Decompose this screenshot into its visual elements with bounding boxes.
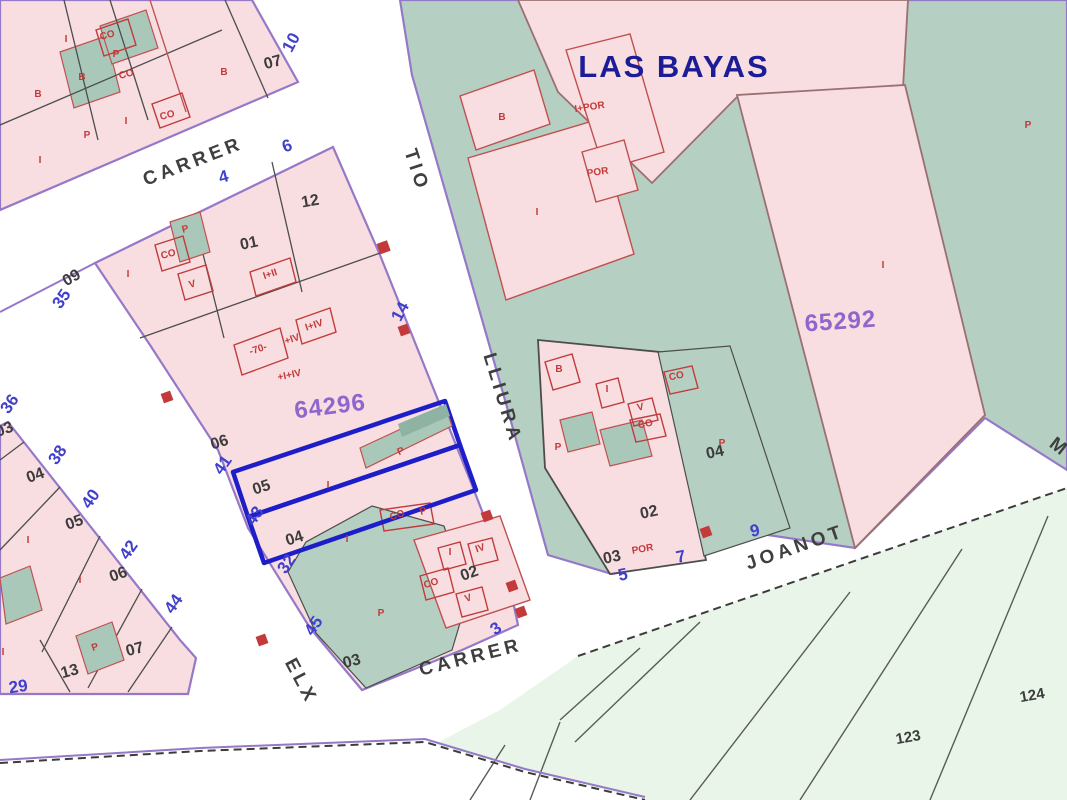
building-use-label: P bbox=[719, 438, 726, 449]
street-number-label: 35 bbox=[48, 286, 74, 312]
cadastral-map: LAS BAYAS CARRERTIOLLIURACARRERELXJOANOT… bbox=[0, 0, 1067, 800]
parcel-number-label: 02 bbox=[639, 502, 660, 522]
building-use-label: I bbox=[449, 547, 452, 558]
building-use-label: B bbox=[220, 67, 227, 78]
street-number-label: 40 bbox=[77, 486, 103, 512]
building-use-label: P bbox=[1025, 120, 1032, 131]
street-name-label: ELX bbox=[280, 655, 322, 708]
building-use-label: I bbox=[27, 535, 30, 546]
building-use-label: I bbox=[65, 34, 68, 45]
street-number-label: 44 bbox=[160, 590, 187, 617]
cluster-green-patch-2 bbox=[560, 412, 600, 452]
red-mark bbox=[161, 391, 174, 404]
street-number-label: 4 bbox=[217, 166, 232, 187]
building-use-label: P bbox=[113, 49, 120, 60]
building-use-label: I bbox=[536, 207, 539, 218]
street-edge bbox=[0, 263, 95, 312]
street-number-label: 6 bbox=[279, 135, 294, 156]
street-name-label: TIO bbox=[399, 146, 432, 194]
building-use-label: P bbox=[84, 130, 91, 141]
building-use-label: P bbox=[378, 608, 385, 619]
street-number-label: 42 bbox=[115, 537, 141, 563]
map-canvas: LAS BAYAS CARRERTIOLLIURACARRERELXJOANOT… bbox=[0, 0, 1067, 800]
street-number-label: 36 bbox=[0, 391, 23, 417]
building-use-label: B bbox=[555, 364, 562, 375]
building-use-label: I bbox=[79, 575, 82, 586]
building-use-label: I bbox=[2, 647, 5, 658]
street-number-label: 10 bbox=[278, 30, 304, 56]
parcel-id-label[interactable]: 65292 bbox=[804, 306, 877, 338]
building-use-label: I bbox=[882, 260, 885, 271]
area-title: LAS BAYAS bbox=[578, 49, 769, 84]
building-use-label: I bbox=[346, 534, 349, 545]
building-use-label: I bbox=[327, 480, 330, 491]
parcel-number-label: 01 bbox=[239, 233, 260, 253]
street-number-label: 29 bbox=[8, 676, 29, 697]
red-mark bbox=[256, 634, 269, 647]
parcel-number-label: 12 bbox=[300, 192, 321, 212]
building-use-label: P bbox=[555, 442, 562, 453]
building-use-label: B bbox=[498, 112, 505, 123]
building-use-label: I bbox=[606, 384, 609, 395]
street-number-label: 38 bbox=[44, 442, 70, 468]
building-use-label: B bbox=[78, 72, 85, 83]
building-use-label: I bbox=[125, 116, 128, 127]
building-use-label: I bbox=[39, 155, 42, 166]
building-use-label: I bbox=[127, 269, 130, 280]
building-use-label: B bbox=[34, 89, 41, 100]
